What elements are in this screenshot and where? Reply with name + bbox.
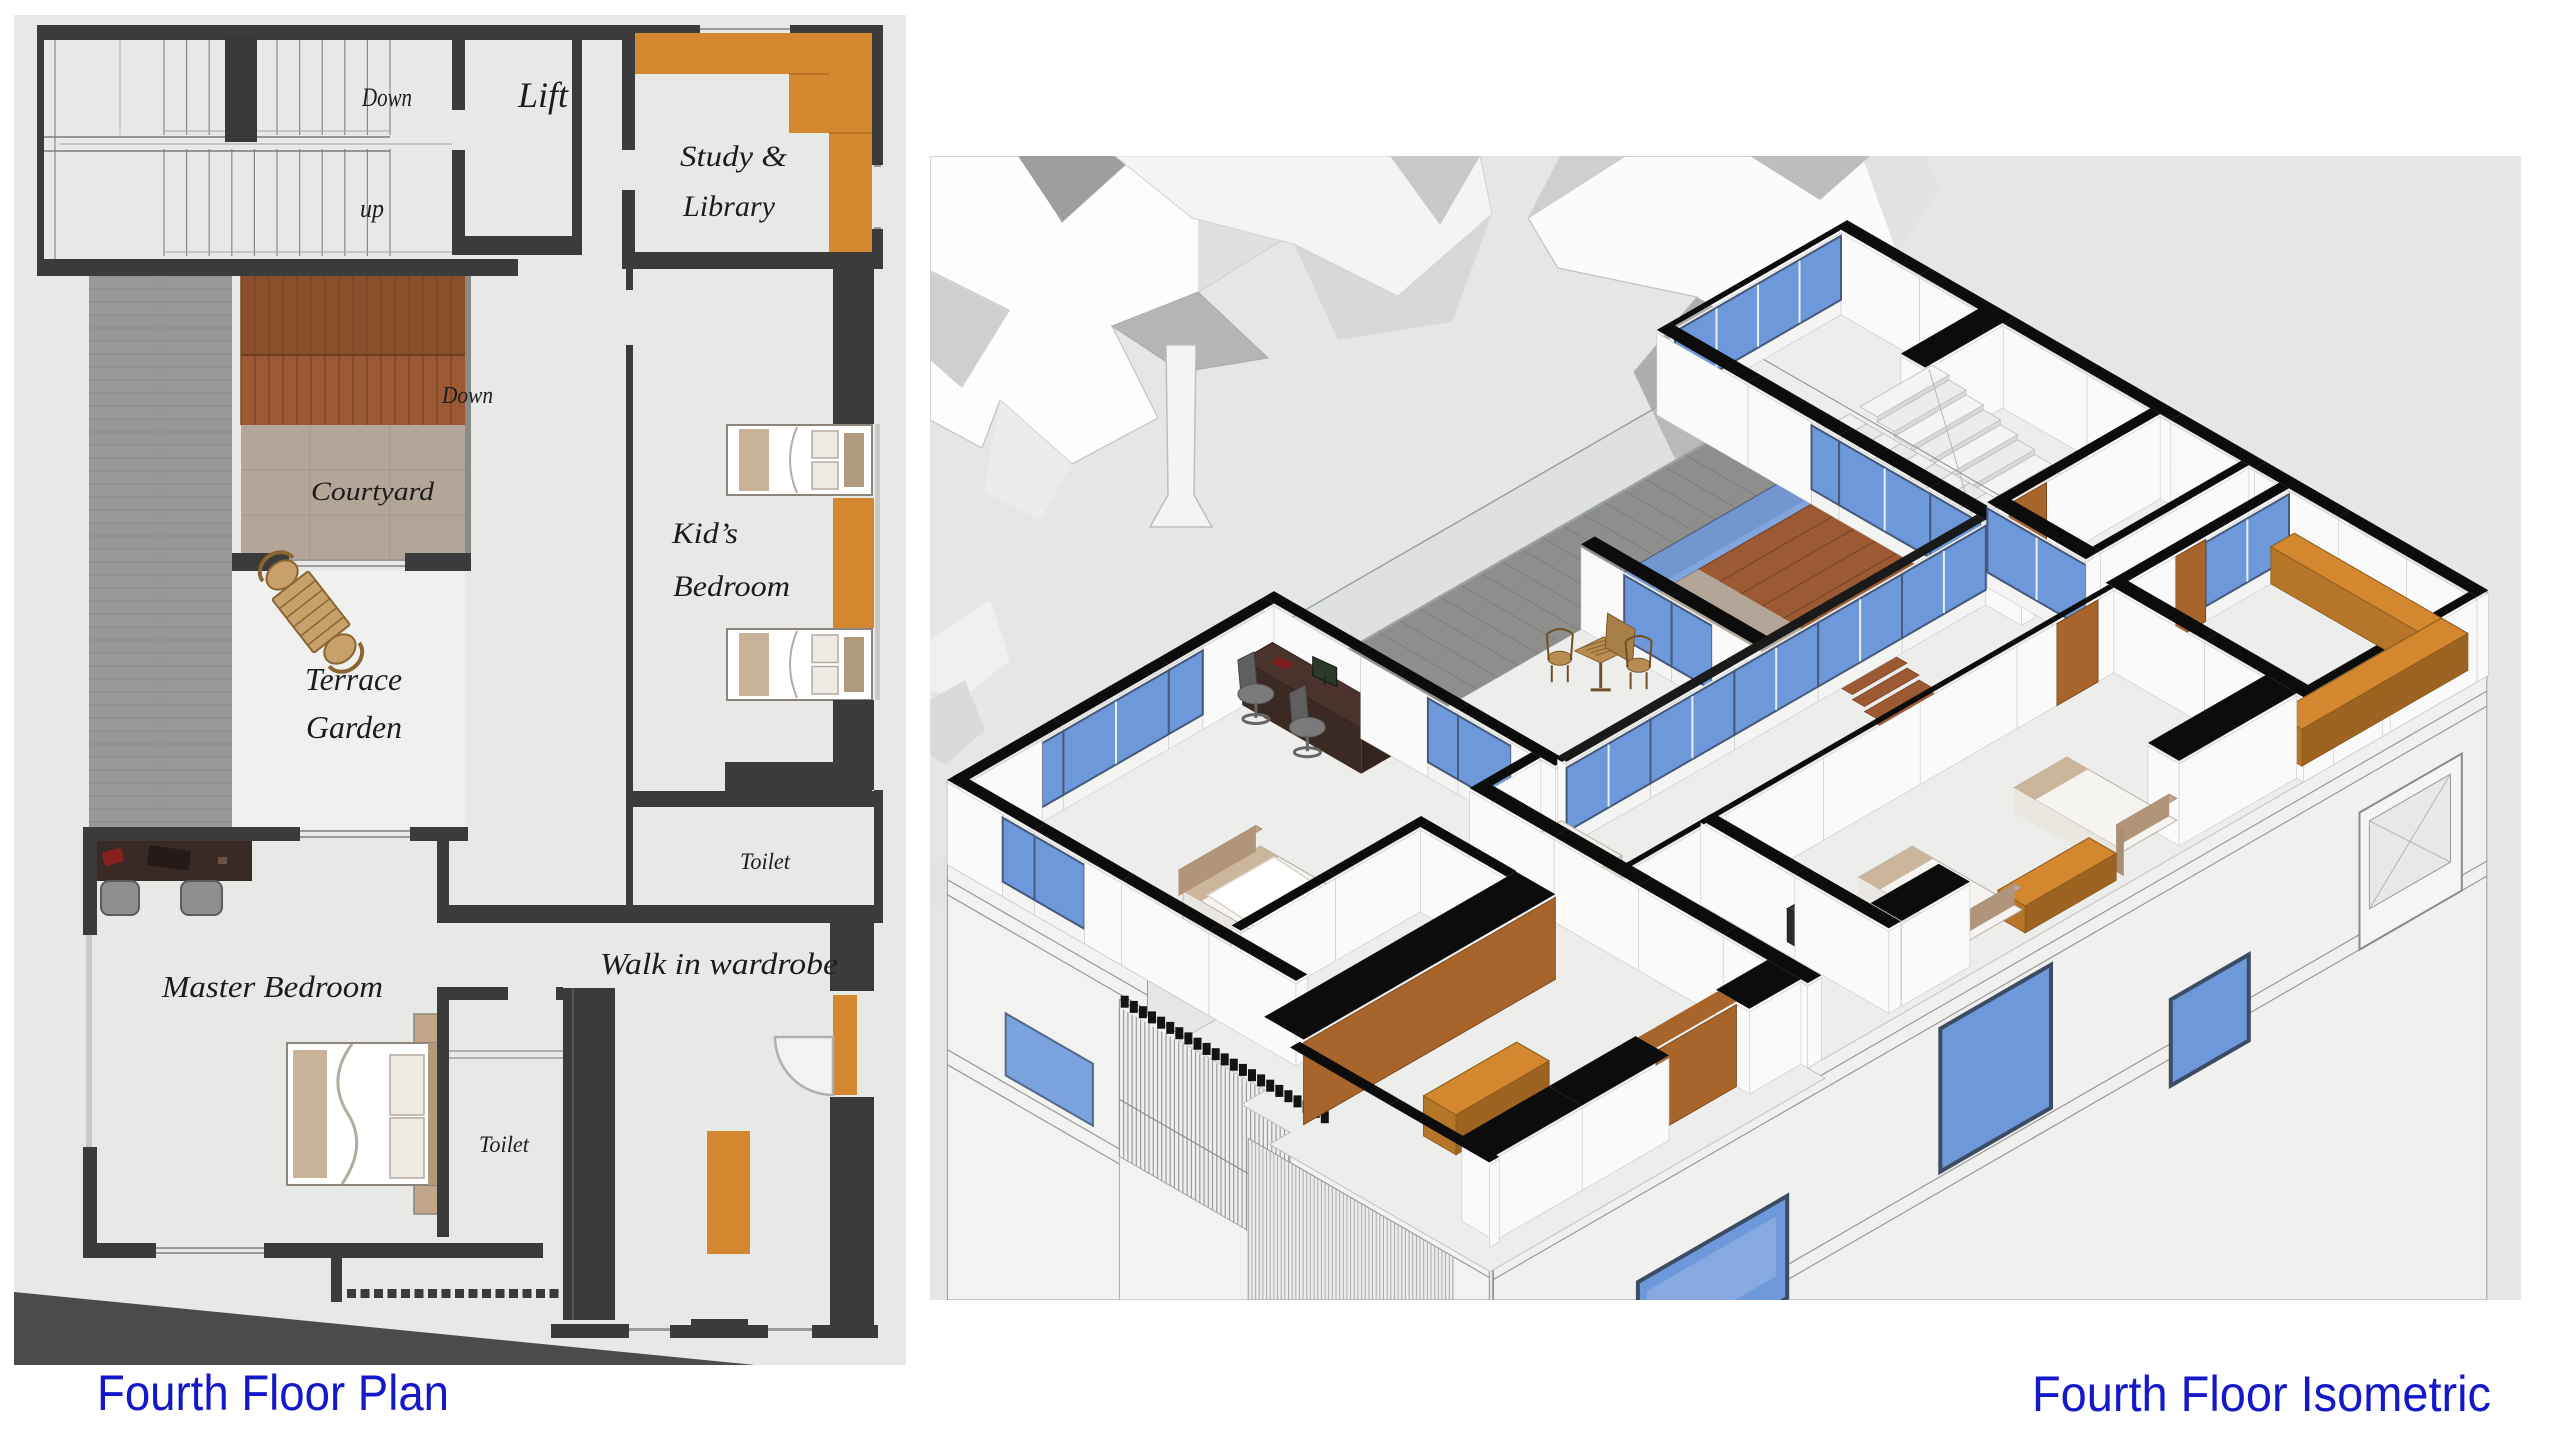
svg-text:Garden: Garden — [306, 709, 402, 745]
svg-text:Library: Library — [682, 190, 776, 223]
svg-text:Walk in wardrobe: Walk in wardrobe — [600, 946, 838, 981]
svg-text:Toilet: Toilet — [740, 849, 791, 874]
svg-text:Bedroom: Bedroom — [673, 570, 790, 603]
svg-text:Master Bedroom: Master Bedroom — [161, 969, 383, 1004]
svg-text:Lift: Lift — [517, 75, 569, 115]
svg-text:Fourth Floor Isometric: Fourth Floor Isometric — [2032, 1366, 2491, 1422]
svg-text:Down: Down — [361, 83, 412, 112]
svg-text:Fourth Floor Plan: Fourth Floor Plan — [97, 1365, 449, 1421]
svg-text:Study &: Study & — [680, 140, 788, 173]
svg-text:Courtyard: Courtyard — [311, 477, 435, 506]
svg-text:up: up — [360, 194, 384, 223]
svg-text:Terrace: Terrace — [305, 661, 402, 697]
svg-text:Toilet: Toilet — [479, 1132, 530, 1157]
svg-text:Down: Down — [441, 383, 493, 409]
svg-text:Kid’s: Kid’s — [671, 517, 738, 550]
